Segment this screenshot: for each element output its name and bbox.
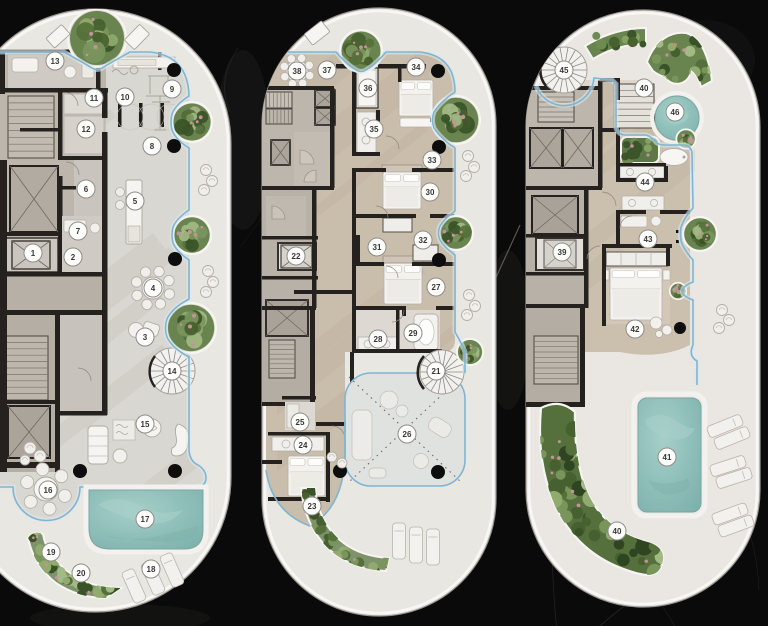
svg-text:32: 32 (419, 236, 428, 245)
svg-text:28: 28 (374, 335, 383, 344)
svg-text:31: 31 (373, 243, 382, 252)
svg-text:41: 41 (663, 453, 672, 462)
svg-text:37: 37 (323, 66, 332, 75)
svg-text:38: 38 (293, 67, 302, 76)
svg-text:42: 42 (631, 325, 640, 334)
svg-text:44: 44 (641, 178, 650, 187)
svg-text:7: 7 (76, 227, 81, 236)
svg-text:33: 33 (428, 156, 437, 165)
svg-text:36: 36 (364, 84, 373, 93)
svg-text:10: 10 (121, 93, 130, 102)
svg-text:1: 1 (31, 249, 36, 258)
svg-text:2: 2 (71, 253, 76, 262)
svg-text:35: 35 (370, 125, 379, 134)
svg-text:5: 5 (133, 197, 138, 206)
svg-text:39: 39 (558, 248, 567, 257)
svg-text:8: 8 (150, 142, 155, 151)
svg-text:46: 46 (671, 108, 680, 117)
svg-text:20: 20 (77, 569, 86, 578)
svg-text:30: 30 (426, 188, 435, 197)
svg-text:45: 45 (560, 66, 569, 75)
svg-text:9: 9 (170, 85, 175, 94)
svg-text:40: 40 (613, 527, 622, 536)
svg-text:12: 12 (82, 125, 91, 134)
svg-text:21: 21 (432, 367, 441, 376)
svg-text:40: 40 (640, 84, 649, 93)
svg-text:17: 17 (141, 515, 150, 524)
svg-text:22: 22 (292, 252, 301, 261)
svg-text:25: 25 (296, 418, 305, 427)
svg-text:23: 23 (308, 502, 317, 511)
svg-text:3: 3 (143, 333, 148, 342)
svg-text:16: 16 (44, 486, 53, 495)
svg-text:6: 6 (84, 185, 89, 194)
svg-text:4: 4 (151, 284, 156, 293)
svg-text:43: 43 (644, 235, 653, 244)
svg-text:24: 24 (299, 441, 308, 450)
svg-text:14: 14 (168, 367, 177, 376)
svg-text:18: 18 (147, 565, 156, 574)
svg-text:15: 15 (141, 420, 150, 429)
svg-text:27: 27 (432, 283, 441, 292)
svg-text:11: 11 (90, 94, 99, 103)
svg-text:26: 26 (403, 430, 412, 439)
svg-text:34: 34 (412, 63, 421, 72)
svg-text:13: 13 (51, 57, 60, 66)
svg-text:19: 19 (47, 548, 56, 557)
svg-text:29: 29 (409, 329, 418, 338)
